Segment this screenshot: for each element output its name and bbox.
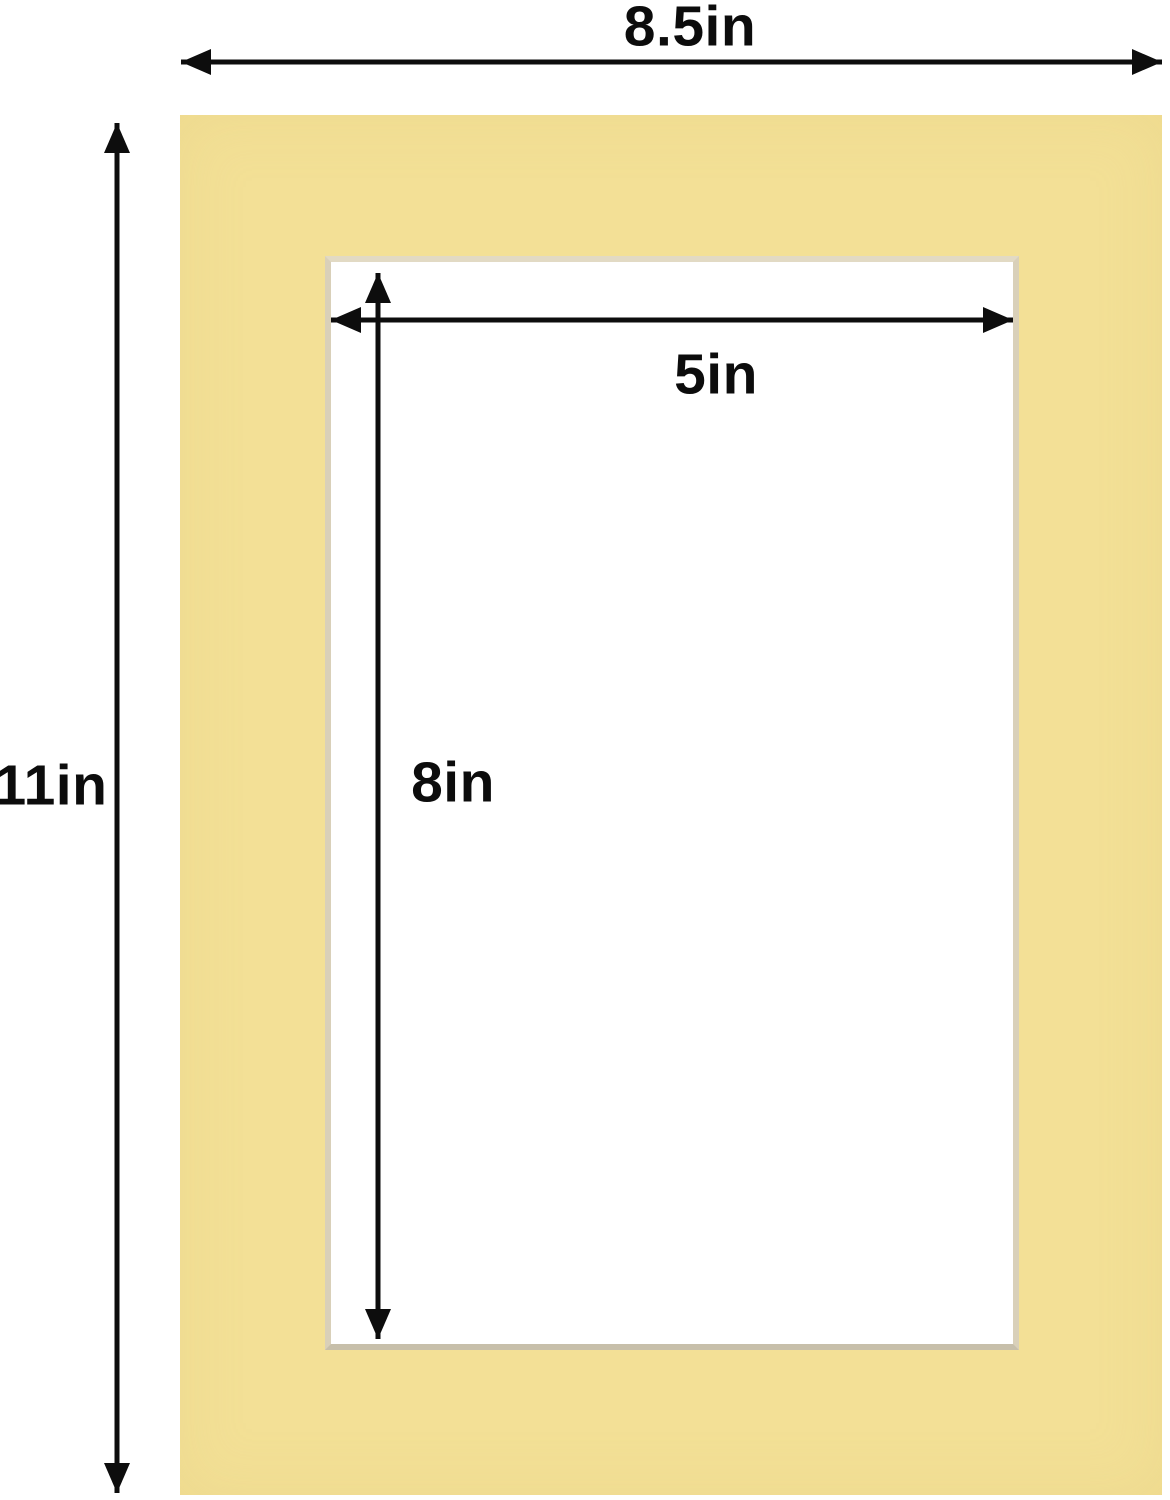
- outer-height-label: 11in: [0, 758, 107, 815]
- window-width-label: 5in: [674, 347, 758, 404]
- diagram-canvas: 8.5in 11in 5in 8in: [0, 0, 1170, 1500]
- outer-width-label: 8.5in: [624, 0, 756, 56]
- window-height-label: 8in: [411, 755, 495, 812]
